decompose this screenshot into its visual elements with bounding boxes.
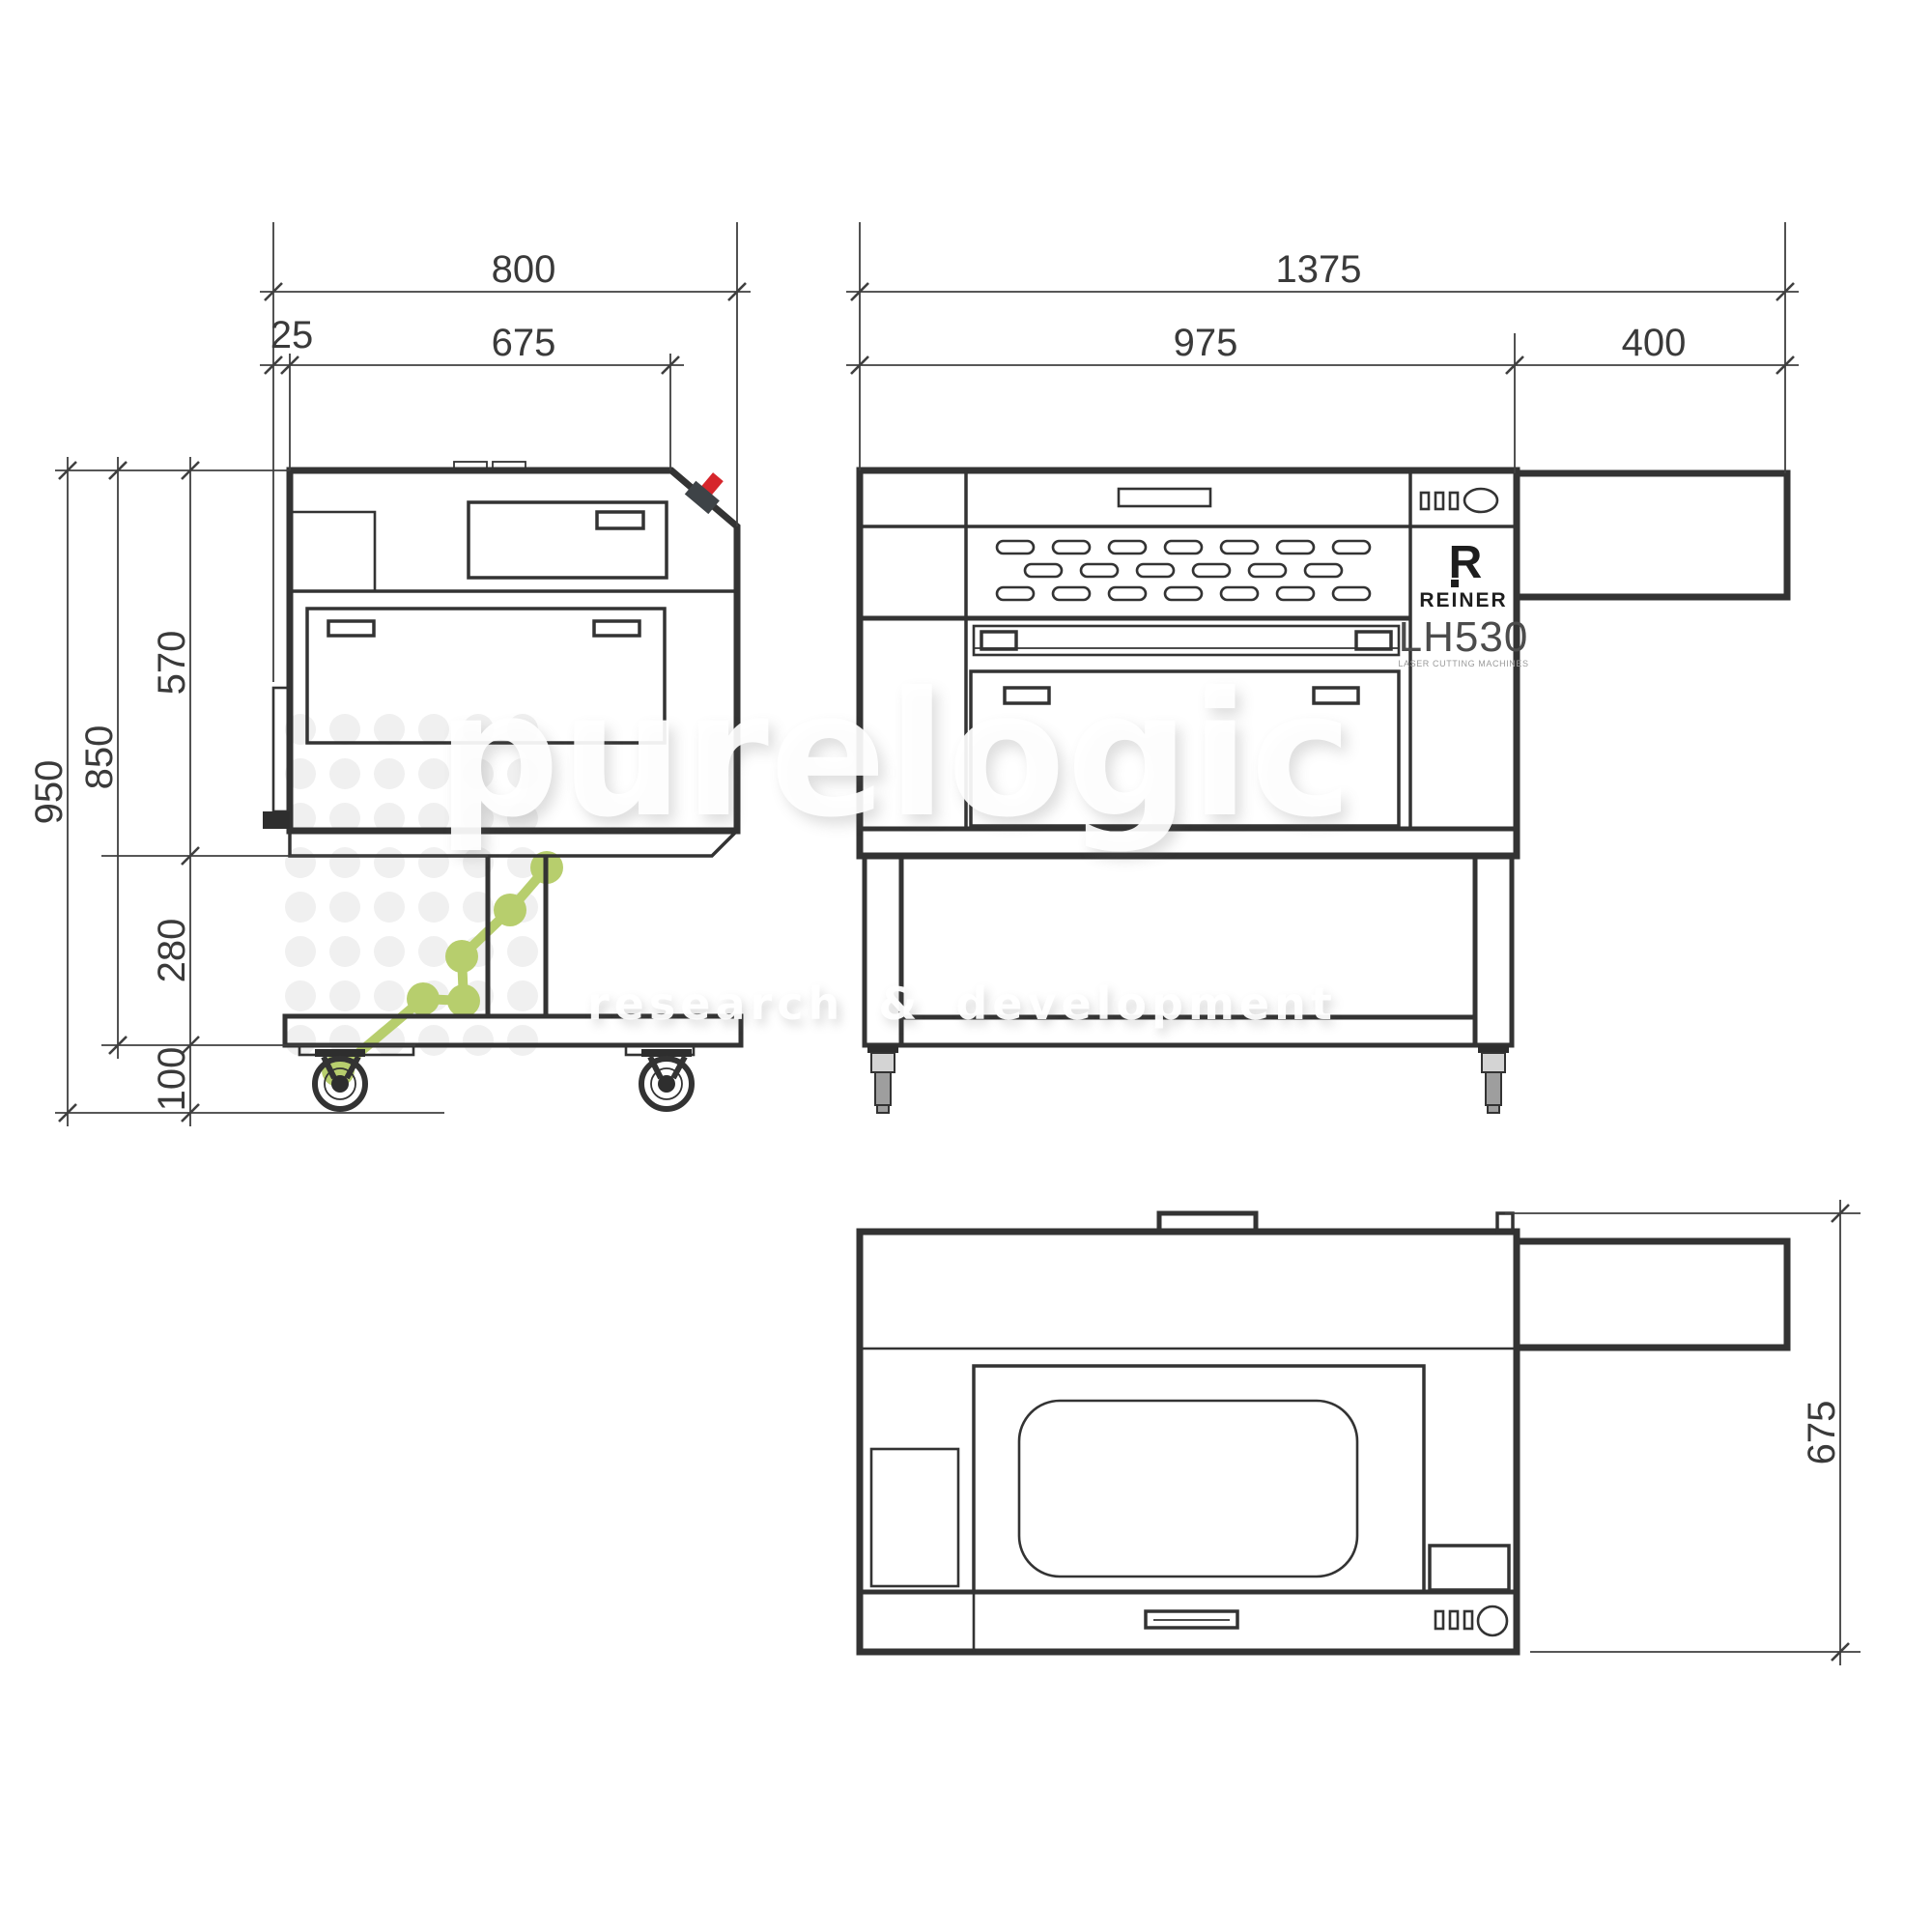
front-view: R REINER LH530 LASER CUTTING MACHINES <box>860 470 1787 1113</box>
side-door-handle-right <box>594 621 639 636</box>
side-door-handle-left <box>328 621 374 636</box>
front-top-slot <box>1119 489 1210 506</box>
stand-beam <box>901 1017 1475 1045</box>
front-control-panel <box>1421 489 1497 512</box>
dim-front-extension-width: 400 <box>1622 322 1687 364</box>
drawing-svg: R REINER LH530 LASER CUTTING MACHINES <box>0 0 1932 1932</box>
vent-grid <box>997 541 1370 600</box>
top-extension-box <box>1517 1241 1787 1348</box>
top-left-compartment <box>871 1449 958 1586</box>
model-subtitle: LASER CUTTING MACHINES <box>1398 659 1528 668</box>
front-rail <box>974 626 1399 655</box>
dim-side-stand-height: 280 <box>151 919 193 983</box>
front-rail-block-right <box>1356 632 1391 649</box>
brand-logo-dot <box>1451 580 1459 587</box>
dim-side-body-stand-height: 850 <box>78 725 121 790</box>
dim-front-total-width: 1375 <box>1276 248 1362 291</box>
dim-top-depth: 675 <box>1801 1401 1843 1465</box>
front-foot-right <box>1478 1045 1509 1113</box>
dim-side-upper-depth: 675 <box>492 322 556 364</box>
dim-front-cabinet-width: 975 <box>1174 322 1238 364</box>
top-control-panel <box>1435 1606 1507 1635</box>
brand-name: REINER <box>1419 589 1507 611</box>
front-rail-block-left <box>981 632 1016 649</box>
top-right-compartment <box>1430 1546 1509 1590</box>
dim-side-body-height: 570 <box>151 631 193 696</box>
caster-wheel-left <box>315 1049 365 1109</box>
caster-wheel-right <box>641 1049 692 1109</box>
dim-side-total-height: 950 <box>28 760 71 825</box>
stand-leg-left <box>865 856 901 1045</box>
reiner-logo: R REINER <box>1419 537 1507 611</box>
dimensions-front: 1375 975 400 <box>846 222 1799 473</box>
dim-side-rear-offset: 25 <box>270 314 314 356</box>
side-rear-foot <box>263 811 290 829</box>
dim-side-caster-height: 100 <box>151 1047 193 1112</box>
technical-drawing-page: R REINER LH530 LASER CUTTING MACHINES <box>0 0 1932 1932</box>
front-foot-left <box>867 1045 898 1113</box>
dim-side-total-depth: 800 <box>492 248 556 291</box>
top-lid-window <box>1019 1401 1357 1577</box>
model-label: LH530 <box>1399 613 1529 661</box>
power-button-icon <box>1464 489 1497 512</box>
dimensions-top: 675 <box>1505 1200 1861 1665</box>
side-upper-window-handle <box>597 512 643 528</box>
front-door <box>971 671 1399 826</box>
front-extension-box <box>1517 473 1787 597</box>
stand-leg-right <box>1475 856 1512 1045</box>
top-view <box>860 1213 1787 1652</box>
top-body-outline <box>860 1232 1517 1652</box>
side-upper-left-panel <box>290 512 375 591</box>
front-door-handle-left <box>1005 688 1049 703</box>
front-door-handle-right <box>1314 688 1358 703</box>
power-button-icon <box>1478 1606 1507 1635</box>
emergency-stop-button <box>685 468 731 514</box>
